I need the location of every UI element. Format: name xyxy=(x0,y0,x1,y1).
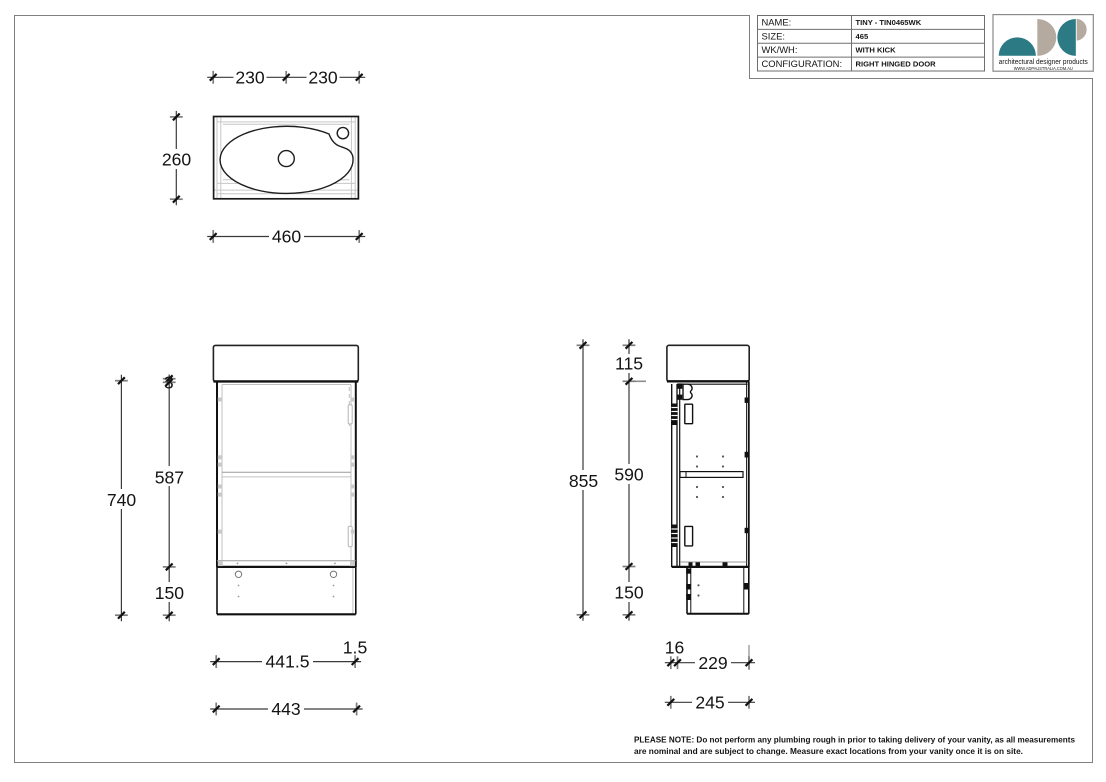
svg-text:NAME:: NAME: xyxy=(762,17,792,28)
svg-text:CONFIGURATION:: CONFIGURATION: xyxy=(762,58,843,69)
svg-text:3: 3 xyxy=(164,372,174,392)
svg-text:587: 587 xyxy=(155,467,184,487)
svg-text:WK/WH:: WK/WH: xyxy=(762,44,798,55)
svg-text:590: 590 xyxy=(614,465,644,485)
svg-text:230: 230 xyxy=(235,67,265,87)
svg-text:architectural designer product: architectural designer products xyxy=(999,59,1088,66)
svg-text:443: 443 xyxy=(271,699,301,719)
svg-text:RIGHT HINGED DOOR: RIGHT HINGED DOOR xyxy=(856,60,937,69)
svg-text:1.5: 1.5 xyxy=(343,638,368,658)
svg-text:115: 115 xyxy=(615,354,643,374)
svg-text:are nominal and are subject to: are nominal and are subject to change. M… xyxy=(634,746,1023,756)
svg-text:245: 245 xyxy=(695,692,725,712)
svg-text:WWW.ADPAUSTRALIA.COM.AU: WWW.ADPAUSTRALIA.COM.AU xyxy=(1014,66,1073,71)
svg-text:441.5: 441.5 xyxy=(265,652,309,672)
svg-text:PLEASE NOTE: Do not perform an: PLEASE NOTE: Do not perform any plumbing… xyxy=(634,734,1075,744)
svg-text:150: 150 xyxy=(155,583,185,603)
svg-text:740: 740 xyxy=(107,490,137,510)
svg-text:855: 855 xyxy=(569,471,599,491)
svg-text:WITH KICK: WITH KICK xyxy=(856,46,897,55)
svg-text:465: 465 xyxy=(856,32,869,41)
svg-text:150: 150 xyxy=(614,583,644,603)
svg-text:SIZE:: SIZE: xyxy=(762,30,785,41)
svg-text:230: 230 xyxy=(308,67,338,87)
svg-text:460: 460 xyxy=(272,227,302,247)
svg-text:260: 260 xyxy=(162,150,192,170)
svg-text:TINY - TIN0465WK: TINY - TIN0465WK xyxy=(856,18,922,27)
svg-text:229: 229 xyxy=(698,653,727,673)
svg-text:16: 16 xyxy=(665,638,685,658)
